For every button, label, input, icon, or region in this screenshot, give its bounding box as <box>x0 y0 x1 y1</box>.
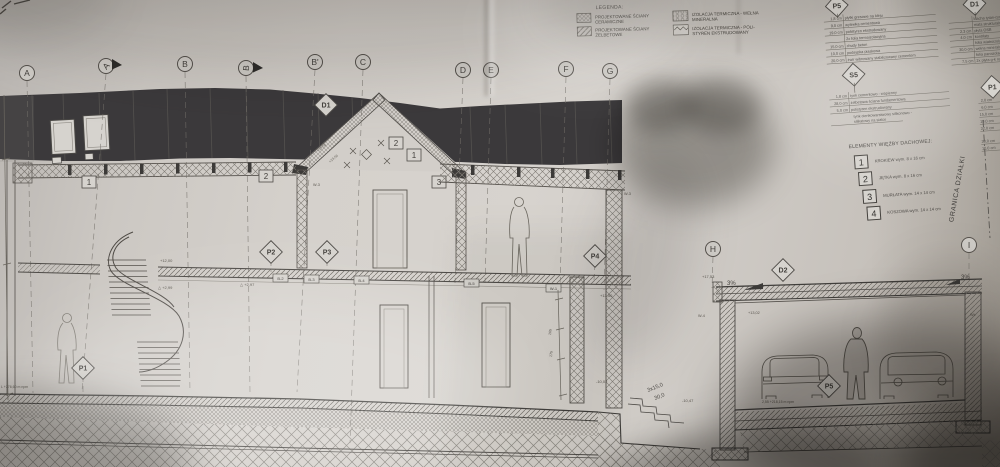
svg-text:4: 4 <box>871 208 877 218</box>
svg-text:2,3 cm: 2,3 cm <box>960 29 972 34</box>
svg-text:LEGENDA:: LEGENDA: <box>596 4 624 11</box>
svg-text:1,8 cm: 1,8 cm <box>830 16 842 21</box>
svg-text:275: 275 <box>549 351 553 357</box>
svg-text:D: D <box>460 65 466 75</box>
svg-text:D1: D1 <box>322 103 331 110</box>
svg-text:A: A <box>24 68 30 78</box>
svg-text:Wk: Wk <box>970 313 976 317</box>
svg-text:3: 3 <box>867 192 873 202</box>
svg-text:4,0 cm: 4,0 cm <box>960 35 972 40</box>
svg-text:1: 1 <box>87 178 92 187</box>
svg-text:2: 2 <box>394 139 399 148</box>
svg-text:1,8 cm: 1,8 cm <box>836 94 848 99</box>
svg-text:CERAMICZNE: CERAMICZNE <box>595 19 624 25</box>
svg-text:P3: P3 <box>323 250 332 257</box>
svg-text:+13,50: +13,50 <box>600 293 613 298</box>
svg-text:silikatowy na siatce: silikatowy na siatce <box>854 118 887 124</box>
svg-text:30,0: 30,0 <box>654 392 666 402</box>
svg-text:P1: P1 <box>79 366 88 373</box>
svg-text:kontrłaty: kontrłaty <box>975 34 990 39</box>
svg-text:-10,02: -10,02 <box>596 379 608 384</box>
svg-text:+17,53: +17,53 <box>702 274 715 279</box>
svg-text:P5: P5 <box>832 3 841 11</box>
svg-text:F: F <box>563 64 568 74</box>
svg-text:10,0 cm: 10,0 cm <box>982 146 996 151</box>
svg-text:1: 1 <box>412 151 417 160</box>
svg-text:ŻELBETOWE: ŻELBETOWE <box>595 32 622 38</box>
svg-text:P2: P2 <box>267 250 276 257</box>
svg-text:I: I <box>968 240 970 250</box>
svg-text:W-3: W-3 <box>624 192 631 196</box>
svg-text:19,0 cm: 19,0 cm <box>980 119 994 124</box>
svg-text:żelbetowa ściana fundamentowa: żelbetowa ściana fundamentowa <box>850 97 906 105</box>
svg-text:2,55 +218,15 m npm: 2,55 +218,15 m npm <box>762 400 794 404</box>
svg-text:20,0 cm: 20,0 cm <box>831 58 845 63</box>
svg-text:W-4: W-4 <box>698 314 705 318</box>
svg-text:-10,47: -10,47 <box>682 398 694 403</box>
svg-text:B': B' <box>311 57 319 67</box>
svg-text:D1: D1 <box>970 1 980 9</box>
svg-text:W-1: W-1 <box>550 286 558 291</box>
svg-text:28,0 cm: 28,0 cm <box>834 101 848 106</box>
svg-text:B-2: B-2 <box>277 276 284 281</box>
svg-text:B-5: B-5 <box>468 281 475 286</box>
svg-text:3%: 3% <box>727 281 736 287</box>
svg-text:2: 2 <box>863 174 869 184</box>
svg-text:P4: P4 <box>591 254 600 261</box>
svg-text:9,0 cm: 9,0 cm <box>831 23 843 28</box>
svg-text:7,5 cm: 7,5 cm <box>962 59 974 64</box>
svg-text:+13,02: +13,02 <box>748 311 760 315</box>
svg-text:H: H <box>710 244 716 254</box>
svg-text:3%: 3% <box>961 275 970 281</box>
svg-text:6,0 cm: 6,0 cm <box>981 105 993 110</box>
svg-text:MURŁATA wym. 14 x 14 cm: MURŁATA wym. 14 x 14 cm <box>883 189 935 198</box>
svg-text:2: 2 <box>264 172 269 181</box>
svg-text:+12,00: +12,00 <box>160 258 173 263</box>
svg-text:265: 265 <box>548 329 552 335</box>
svg-text:E: E <box>488 65 494 75</box>
svg-text:D2: D2 <box>779 268 788 275</box>
svg-text:GRANICA DZIAŁKI: GRANICA DZIAŁKI <box>948 155 967 222</box>
svg-text:△ +2,97: △ +2,97 <box>240 282 255 287</box>
svg-text:5,0 cm: 5,0 cm <box>837 108 849 113</box>
svg-text:W-3: W-3 <box>313 183 320 187</box>
svg-text:G: G <box>607 66 614 76</box>
svg-text:19,0 cm: 19,0 cm <box>829 30 843 35</box>
svg-text:30,0 cm: 30,0 cm <box>981 139 995 144</box>
svg-text:32,0 cm: 32,0 cm <box>981 126 995 131</box>
svg-text:10,0 cm: 10,0 cm <box>831 51 845 56</box>
svg-text:P1: P1 <box>988 84 997 92</box>
svg-text:podsypka piaskowa: podsypka piaskowa <box>847 49 881 55</box>
svg-text:P5: P5 <box>825 384 834 391</box>
svg-text:B: B <box>182 59 188 69</box>
svg-text:ELEMENTY WIĘŹBY DACHOWEJ:: ELEMENTY WIĘŹBY DACHOWEJ: <box>848 137 932 150</box>
svg-text:30,0 cm: 30,0 cm <box>959 47 973 52</box>
svg-text:B-3: B-3 <box>308 277 315 282</box>
svg-text:B-4: B-4 <box>358 278 365 283</box>
svg-text:MINERALNA: MINERALNA <box>692 16 718 22</box>
svg-text:15,0 cm: 15,0 cm <box>830 44 844 49</box>
svg-text:KROKIEW wym. 8 x 16 cm: KROKIEW wym. 8 x 16 cm <box>875 155 926 164</box>
svg-text:15,0 cm: 15,0 cm <box>980 112 994 117</box>
svg-text:1: 1 <box>858 157 864 167</box>
svg-text:L +276,60 m npm: L +276,60 m npm <box>1 385 28 389</box>
svg-text:KOSZOWA wym. 14 x 14 cm: KOSZOWA wym. 14 x 14 cm <box>887 206 941 215</box>
svg-text:JĘTKA wym. 8 x 16 cm: JĘTKA wym. 8 x 16 cm <box>879 172 923 180</box>
svg-text:STYREN EKSTRUDOWANY: STYREN EKSTRUDOWANY <box>692 30 749 36</box>
svg-text:△ +2,99: △ +2,99 <box>158 285 173 290</box>
svg-text:C: C <box>360 57 366 67</box>
svg-text:2,0 cm: 2,0 cm <box>981 98 993 103</box>
svg-text:S5: S5 <box>849 72 858 80</box>
